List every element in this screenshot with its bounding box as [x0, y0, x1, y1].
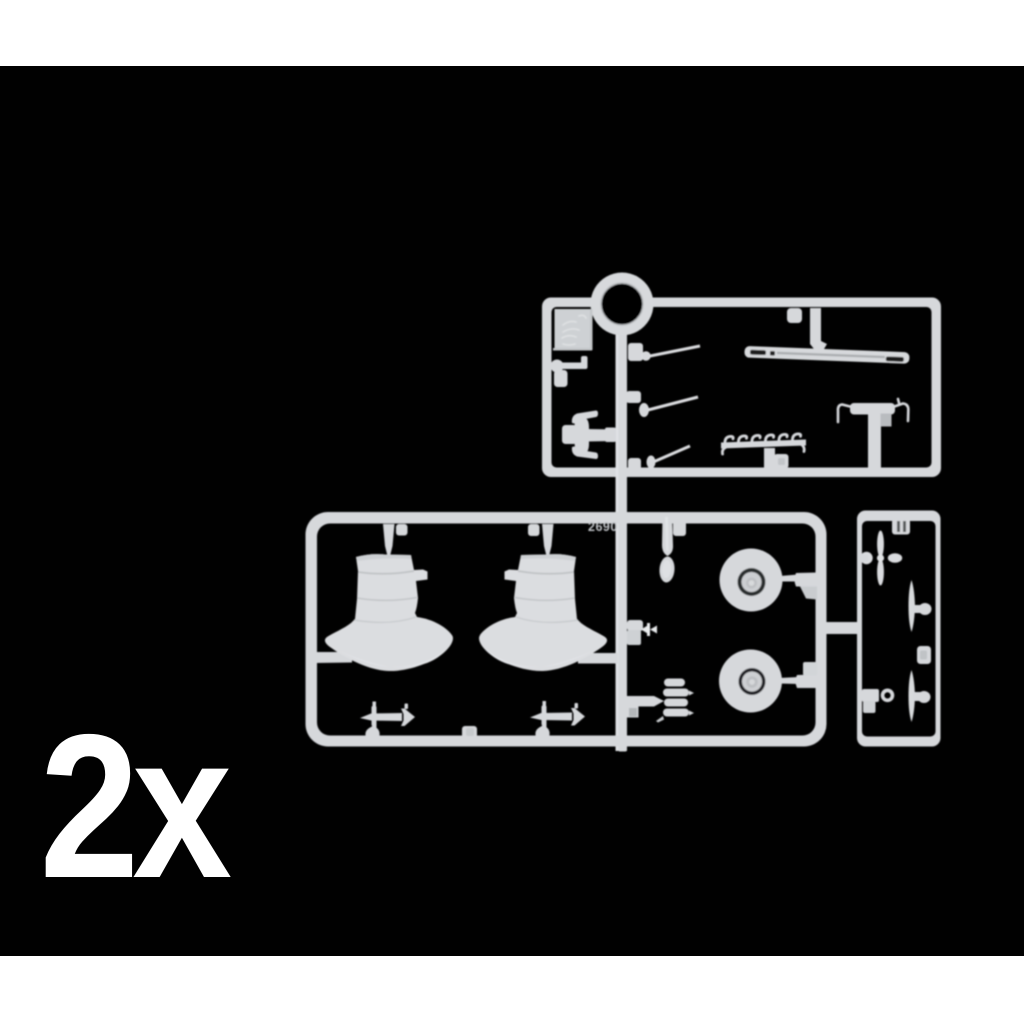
svg-text:2690: 2690 [588, 520, 618, 534]
svg-text:2x: 2x [40, 692, 231, 921]
